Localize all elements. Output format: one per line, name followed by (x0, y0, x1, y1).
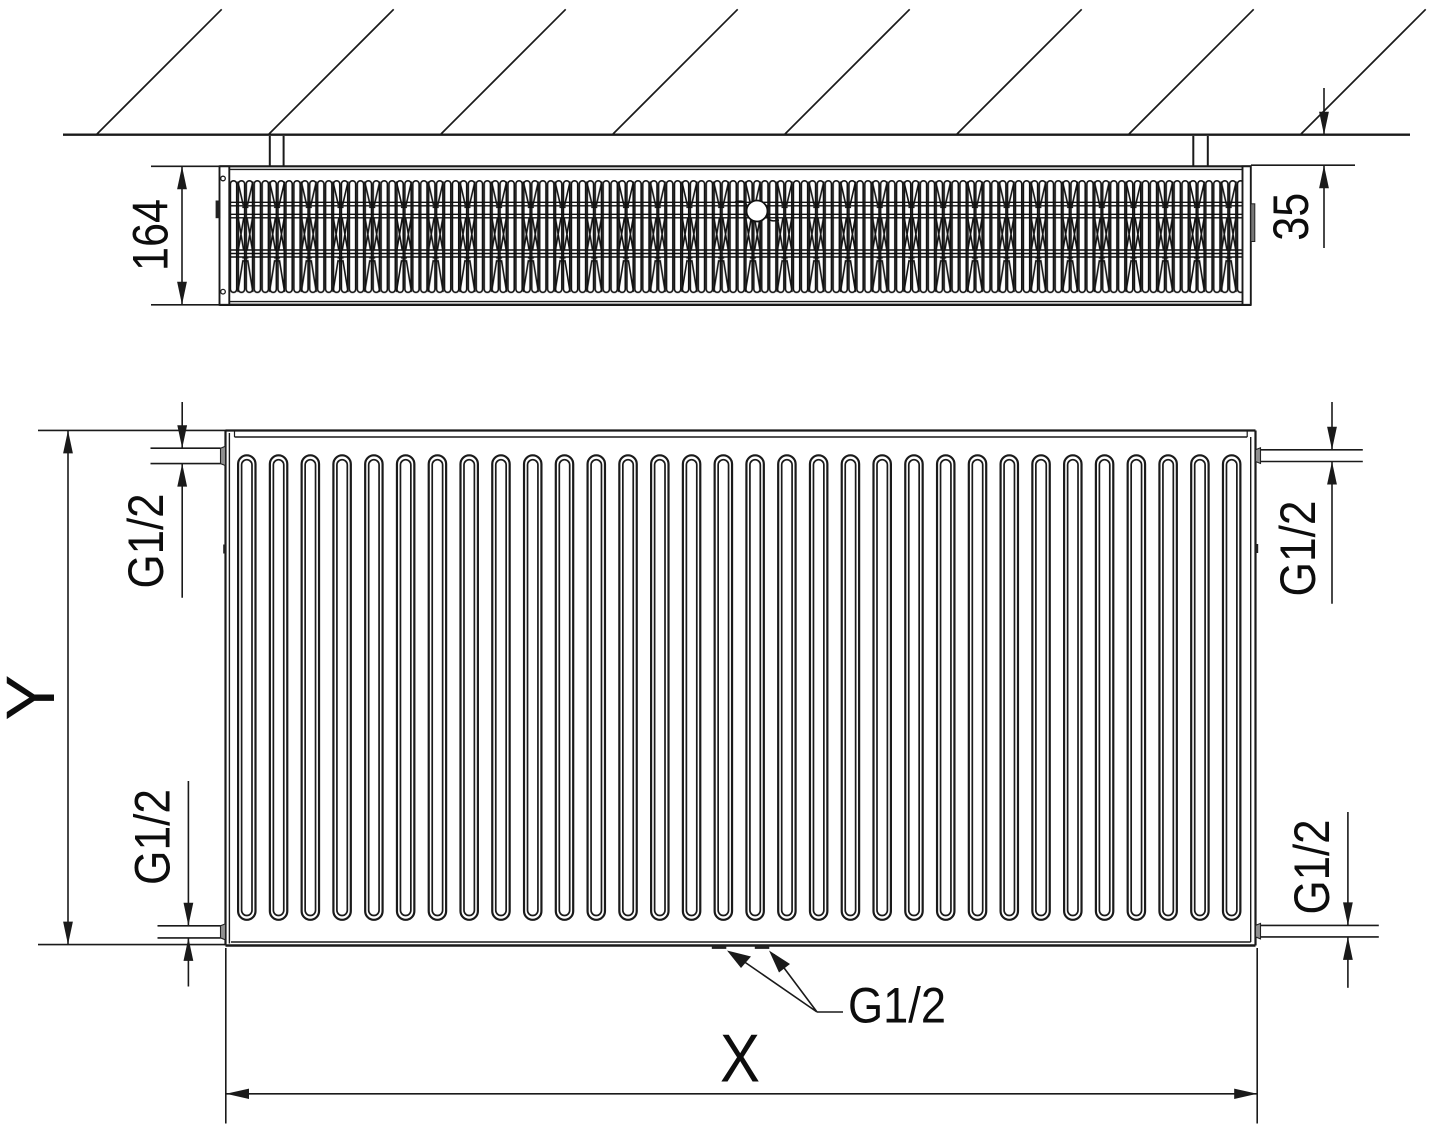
svg-text:G1/2: G1/2 (118, 494, 174, 589)
svg-text:X: X (720, 1021, 760, 1097)
svg-text:35: 35 (1263, 193, 1319, 241)
svg-text:Y: Y (0, 675, 69, 721)
svg-text:G1/2: G1/2 (125, 789, 181, 885)
svg-text:G1/2: G1/2 (848, 978, 946, 1034)
svg-text:G1/2: G1/2 (1270, 501, 1326, 597)
svg-text:G1/2: G1/2 (1284, 820, 1340, 915)
svg-text:164: 164 (123, 199, 179, 271)
